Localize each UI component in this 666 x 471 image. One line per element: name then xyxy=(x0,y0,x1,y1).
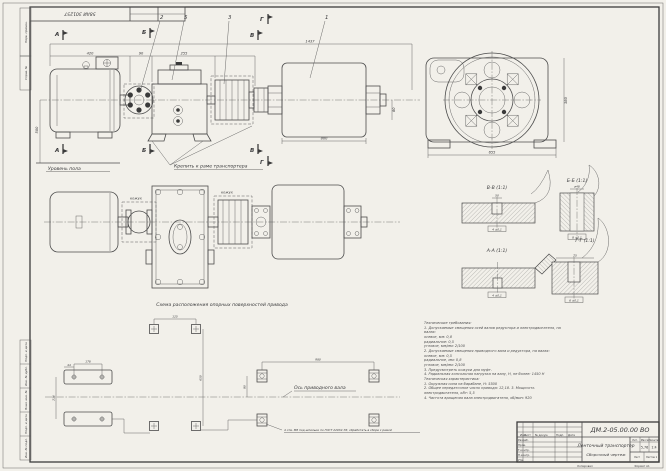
scheme-dimensions: 178 44 236 125 650 980 80 xyxy=(51,315,374,433)
bearing-stud-pads xyxy=(257,370,379,426)
copied-label: Копировал xyxy=(577,464,593,468)
margin-label: Подп. и дата xyxy=(24,342,28,362)
floor-level-label: Уровень пола xyxy=(48,166,81,172)
section-vv-dim: 50 xyxy=(495,194,499,198)
drawing-sheet: 58АИ 301257 Перв. примен. Справ. № Подп.… xyxy=(0,0,666,471)
dim-178: 178 xyxy=(85,360,91,364)
dim-gearbox: 255 xyxy=(181,52,189,56)
sheet-footer: Копировал Формат А1 xyxy=(577,464,650,468)
scale-value: 1:4 xyxy=(651,446,656,450)
tech-line: Технические требования: xyxy=(424,321,472,325)
mark-B-top: Б xyxy=(142,30,146,36)
mark-G-bottom: Г xyxy=(260,160,264,166)
tech-line: 2. Допускаемые смещения приводного вала … xyxy=(424,349,550,353)
balloon-1: 1 xyxy=(325,15,328,21)
item-balloons: 2 5 3 1 xyxy=(140,15,328,92)
section-gg-label: Г-Г (1:1) xyxy=(575,238,594,244)
tech-line: осевое, мм: 0,8 xyxy=(424,335,453,339)
technical-requirements: Технические требования: 1. Допускаемые с… xyxy=(423,321,561,400)
massa-value: 5,76 xyxy=(641,446,648,450)
tech-line: электродвигателя, кВт: 5,5 xyxy=(424,391,476,395)
tech-line: 1. Допускаемые смещения осей валов редук… xyxy=(424,326,561,330)
dim-motor: 420 xyxy=(87,52,95,56)
lit-header: Лит. xyxy=(632,439,638,442)
tech-line: угловое, мм/мм: 2/100 xyxy=(423,344,466,348)
front-dimensions: 1437 420 90 255 800 500 80 xyxy=(35,40,412,163)
margin-label: Подп. и дата xyxy=(24,414,28,434)
tech-line: валах: xyxy=(424,330,436,334)
col-doc: № докум. xyxy=(535,433,548,437)
electric-motor-front xyxy=(50,57,130,138)
cover-label-2: кожух xyxy=(221,191,234,195)
row-prov: Пров. xyxy=(518,443,526,447)
title-block: ДМ.2-05.00.00 ВО Изм. Лист № докум. Подп… xyxy=(517,422,660,462)
dim-axis-height: 500 xyxy=(35,126,39,134)
doc-title-2: Сборочный чертеж xyxy=(586,452,626,457)
dim-80: 80 xyxy=(242,385,246,389)
mark-G-top: Г xyxy=(260,17,264,23)
mark-A-top: А xyxy=(54,32,59,38)
dim-236: 236 xyxy=(51,395,55,401)
dim-shaft-height: 80 xyxy=(392,107,396,112)
dim-980: 980 xyxy=(315,358,321,362)
section-bb: Б-Б (1:1) ø48 8 ±0,1 xyxy=(560,165,599,240)
dim-coupling: 90 xyxy=(139,52,144,56)
section-gg-dim: 75 xyxy=(573,254,577,258)
margin-label: Перв. примен. xyxy=(24,21,28,43)
tech-line: 4. Частота вращения вала электродвигател… xyxy=(424,396,533,400)
margin-label: Инв. № подл. xyxy=(24,438,28,458)
section-vv: В-В (1:1) 50 4 ±0,1 xyxy=(462,170,550,232)
doc-number: ДМ.2-05.00.00 ВО xyxy=(590,426,650,434)
dim-125: 125 xyxy=(172,315,178,319)
gearbox-front xyxy=(148,62,215,141)
tech-line: угловое, мм/мм: 2/100 xyxy=(423,363,466,367)
output-coupling-plan: кожух xyxy=(214,191,252,249)
assembly-drawing: 58АИ 301257 Перв. примен. Справ. № Подп.… xyxy=(0,0,666,471)
section-bb-dim: ø48 xyxy=(573,185,580,189)
endview-width-dim: 655 xyxy=(489,151,497,155)
list-label: Лист xyxy=(634,456,641,459)
gearbox-foot-pads xyxy=(150,325,201,431)
dim-650: 650 xyxy=(198,375,202,381)
section-vv-tol: 4 ±0,1 xyxy=(492,227,502,231)
dim-drum: 800 xyxy=(321,137,329,141)
front-view: 1437 420 90 255 800 500 80 А А Б xyxy=(35,14,420,172)
mark-V-top: В xyxy=(250,33,254,39)
row-nkontr: Н.контр. xyxy=(518,453,530,457)
mounting-scheme: Схема расположения опорных поверхностей … xyxy=(45,302,420,433)
col-podp: Подп. xyxy=(556,433,564,437)
mount-note-label: Крепить к раме транспортера xyxy=(174,164,248,170)
section-vv-label: В-В (1:1) xyxy=(487,185,508,191)
dim-overall: 1437 xyxy=(305,40,315,44)
motor-coupling-plan: кожух xyxy=(122,197,156,243)
listov-label: Листов 1 xyxy=(646,456,658,459)
balloon-2: 2 xyxy=(160,15,164,21)
format-label: Формат А1 xyxy=(634,464,650,468)
section-gg-tol: 6 ±0,1 xyxy=(569,298,579,302)
stamp-code: 58АИ 301257 xyxy=(64,10,95,16)
stud-note: 4 отв. М8 под шпильки по ГОСТ 22032-76; … xyxy=(284,428,392,432)
margin-label: Инв. № дубл. xyxy=(24,366,28,386)
row-utv: Утв. xyxy=(518,458,524,462)
row-razrab: Разраб. xyxy=(518,438,529,442)
masshtab-header: Масштаб xyxy=(648,439,660,442)
row-tkontr: Т.контр. xyxy=(517,448,530,452)
tech-line: Техническая характеристика: xyxy=(424,377,480,381)
motor-coupling-front xyxy=(124,84,154,118)
mark-V-bottom: В xyxy=(250,148,254,154)
section-marks: А А Б Б Г В В Г xyxy=(54,14,273,166)
margin-label: Взам. инв. № xyxy=(24,390,28,410)
mark-A-bottom: А xyxy=(54,148,59,154)
mark-B-bottom: Б xyxy=(142,148,146,154)
tech-line: 2. Общее передаточное число привода: 12,… xyxy=(424,386,535,390)
tech-line: 4. Радиальная консольная нагрузка на вал… xyxy=(424,372,545,376)
scheme-title: Схема расположения опорных поверхностей … xyxy=(156,302,288,308)
col-data: Дата xyxy=(568,433,575,437)
section-bb-label: Б-Б (1:1) xyxy=(567,178,588,184)
cover-label-1: кожух xyxy=(130,197,143,201)
endview-height-dim: 380 xyxy=(564,96,568,104)
motor-foot-pads xyxy=(64,370,112,426)
margin-label: Справ. № xyxy=(24,66,28,80)
axis-label: Ось приводного вала xyxy=(294,385,346,391)
col-list: Лист xyxy=(524,433,531,437)
section-aa: А-А (1:1) 4 ±0,1 xyxy=(462,248,556,298)
balloon-3: 3 xyxy=(228,15,232,21)
gearbox-plan xyxy=(146,186,218,288)
scheme-annotations: Ось приводного вала 4 отв. М8 под шпильк… xyxy=(266,385,420,433)
doc-title-1: Ленточный транспортер xyxy=(576,443,634,449)
section-aa-label: А-А (1:1) xyxy=(486,248,508,254)
tech-line: радиальное, мм: 0,8 xyxy=(423,358,462,362)
plan-view: кожух кожух xyxy=(44,185,400,288)
section-aa-tol: 4 ±0,1 xyxy=(492,293,502,297)
end-view: 655 380 xyxy=(426,51,568,158)
dim-44: 44 xyxy=(67,363,71,367)
balloon-5: 5 xyxy=(184,15,188,21)
